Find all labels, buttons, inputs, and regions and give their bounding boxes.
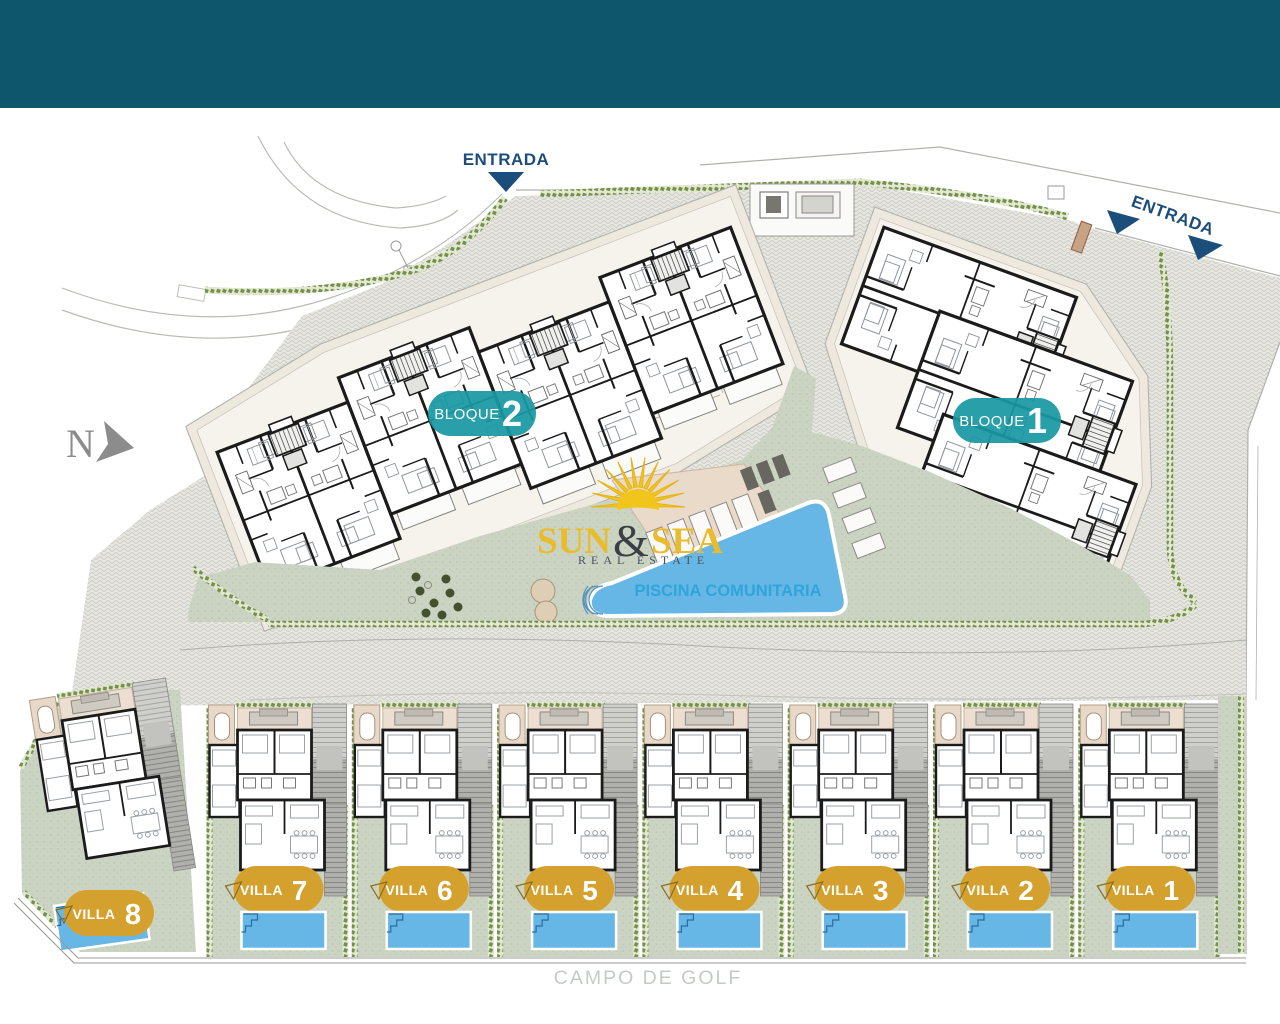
svg-text:5: 5	[582, 875, 598, 906]
svg-text:VILLA: VILLA	[821, 882, 864, 898]
svg-text:1: 1	[1164, 875, 1180, 906]
svg-text:VILLA: VILLA	[531, 882, 574, 898]
svg-text:BLOQUE: BLOQUE	[959, 413, 1025, 430]
svg-text:ENTRADA: ENTRADA	[463, 150, 550, 169]
svg-text:2: 2	[1018, 875, 1034, 906]
svg-text:VILLA: VILLA	[1112, 882, 1155, 898]
svg-text:VILLA: VILLA	[676, 882, 719, 898]
svg-text:VILLA: VILLA	[73, 906, 116, 922]
svg-text:3: 3	[873, 875, 889, 906]
svg-text:BLOQUE: BLOQUE	[434, 406, 500, 423]
svg-text:2: 2	[502, 393, 522, 434]
svg-text:8: 8	[125, 899, 141, 931]
svg-text:N: N	[66, 421, 95, 466]
svg-text:CAMPO DE GOLF: CAMPO DE GOLF	[554, 967, 743, 989]
svg-text:4: 4	[728, 875, 744, 906]
svg-text:1: 1	[1027, 400, 1047, 441]
svg-text:REAL ESTATE: REAL ESTATE	[578, 553, 709, 567]
svg-text:7: 7	[292, 875, 308, 906]
svg-text:PISCINA COMUNITARIA: PISCINA COMUNITARIA	[635, 582, 822, 600]
svg-text:VILLA: VILLA	[967, 882, 1010, 898]
svg-text:VILLA: VILLA	[240, 882, 283, 898]
svg-text:VILLA: VILLA	[385, 882, 428, 898]
svg-text:6: 6	[437, 875, 453, 906]
